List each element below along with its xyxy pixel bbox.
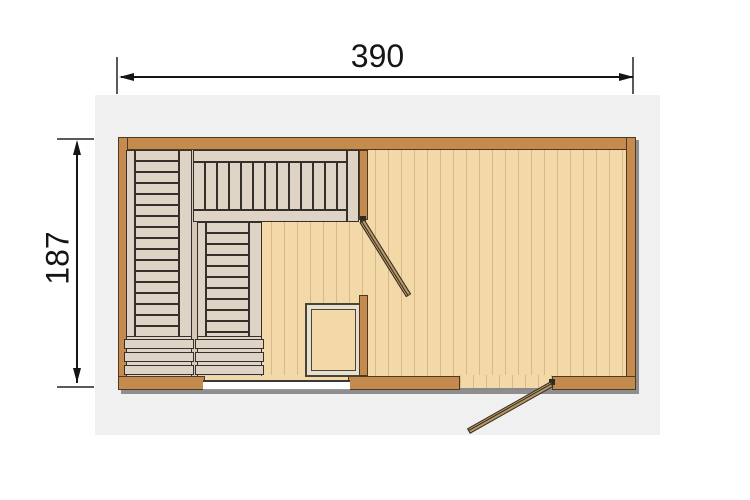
bench-step bbox=[195, 339, 264, 349]
wall-bottom-right bbox=[552, 376, 636, 390]
bench-step bbox=[124, 339, 194, 349]
bench-slats bbox=[194, 163, 346, 209]
floorplan-drawing: 390 187 bbox=[0, 0, 750, 500]
depth-dimension-label: 187 bbox=[41, 211, 75, 306]
width-arrow-right bbox=[619, 73, 634, 81]
depth-extension-line-bottom bbox=[57, 386, 94, 388]
bench-slats bbox=[207, 223, 248, 336]
wall-right bbox=[626, 137, 636, 390]
width-arrow-left bbox=[119, 73, 134, 81]
bench-step bbox=[195, 352, 264, 362]
bench-left-steps bbox=[124, 339, 194, 375]
width-dimension-label: 390 bbox=[330, 39, 425, 73]
wall-bottom-middle bbox=[348, 376, 460, 390]
bench-rail bbox=[194, 209, 346, 221]
bench-rail bbox=[127, 151, 136, 336]
bench-upper bbox=[193, 150, 359, 222]
depth-arrow-down bbox=[73, 368, 81, 383]
bench-rail bbox=[248, 223, 261, 336]
bench-middle-steps bbox=[195, 339, 264, 375]
bench-rail bbox=[194, 151, 346, 163]
partition-wall-upper bbox=[359, 150, 368, 220]
glass-front-panel bbox=[203, 380, 350, 390]
depth-dimension-line bbox=[76, 143, 78, 383]
bench-step bbox=[195, 365, 264, 375]
bench-middle-column bbox=[197, 222, 262, 337]
bench-step bbox=[124, 352, 194, 362]
bench-rail bbox=[346, 151, 358, 221]
bench-step bbox=[124, 365, 194, 375]
width-extension-line-left bbox=[116, 57, 118, 94]
heater bbox=[305, 303, 362, 377]
bench-upper-body bbox=[194, 151, 346, 221]
wall-bottom-left bbox=[118, 376, 205, 390]
bench-slats bbox=[136, 151, 178, 336]
bench-left-column bbox=[126, 150, 192, 337]
depth-arrow-up bbox=[73, 140, 81, 155]
bench-rail bbox=[178, 151, 191, 336]
width-dimension-line bbox=[121, 76, 633, 78]
partition-wall-lower bbox=[359, 295, 368, 376]
wall-top bbox=[118, 137, 636, 150]
bench-rail bbox=[198, 223, 207, 336]
